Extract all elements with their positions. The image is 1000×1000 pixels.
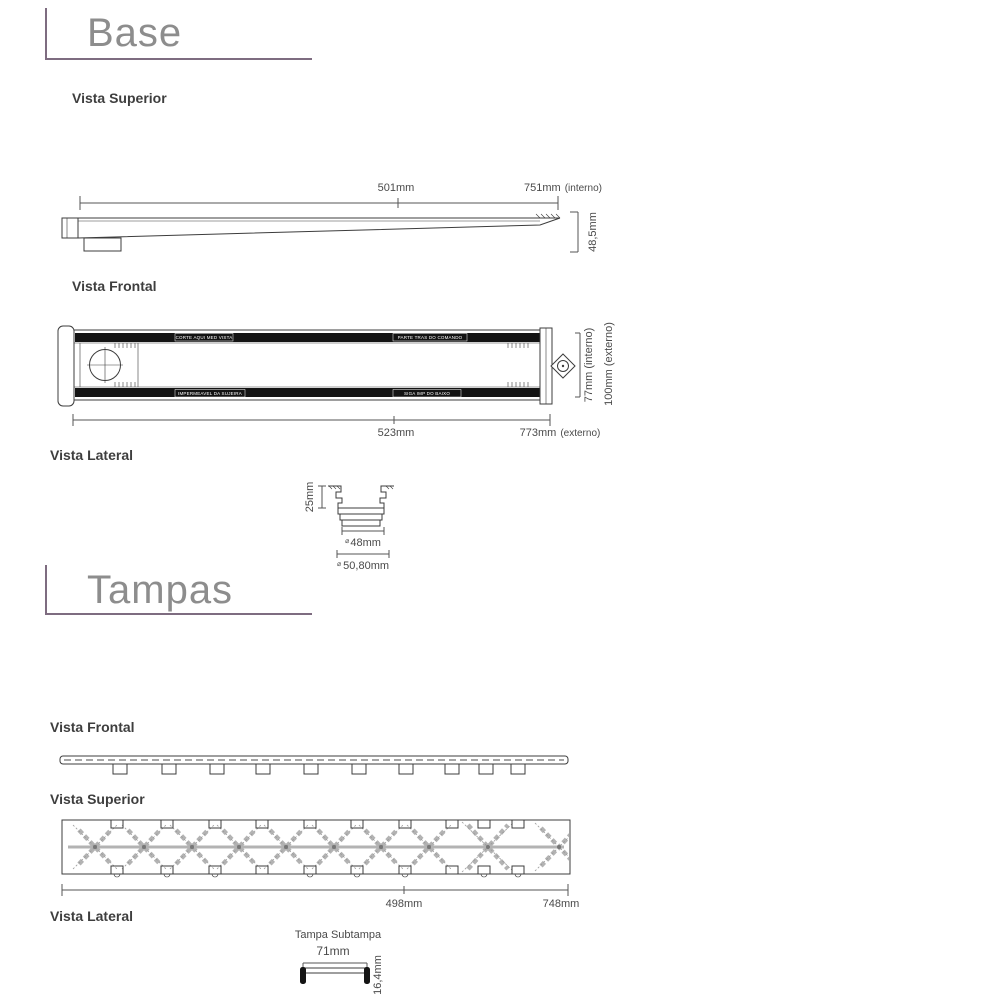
spec-sheet-page: Base Vista Superior 501mm 751mm(interno)… [0,0,1000,1000]
dimension-line-751: 501mm 751mm(interno) [80,182,602,210]
dim-498: 498mm [386,898,423,910]
base-vista-frontal-label: Vista Frontal [72,278,157,294]
tampas-vista-frontal-drawing [40,745,600,787]
base-section-title: Base [47,8,312,58]
dim-71: 71mm [316,944,349,958]
tampas-vista-superior-label: Vista Superior [50,791,145,807]
dimension-25: 25mm [304,482,326,513]
dim-16-4: 16,4mm [372,955,384,995]
tampas-vista-lateral-label: Vista Lateral [50,908,133,924]
base-vista-superior-label: Vista Superior [72,90,167,106]
etch-label-bottom-right: SIGA IMP DO BAIXO [404,391,450,396]
tampas-section-title-block: Tampas [45,565,312,615]
dim-523: 523mm [378,427,415,439]
dim-748: 748mm [543,898,580,910]
etch-label-bottom-left: IMPERMEAVEL DA SUJEIRA [178,391,242,396]
dim-751: 751mm(interno) [524,182,602,194]
dimension-50-80: ⌀50,80mm [337,550,389,572]
etch-label-top-right: PARTE TRAS DO COMANDO [398,335,463,340]
dim-100-externo: 100mm (externo) [603,322,615,406]
tampas-vista-superior-drawing: 498mm 748mm [40,808,600,920]
tampas-vista-lateral-drawing: Tampa Subtampa 71mm 16,4mm [260,922,480,1000]
base-frontal-body [58,326,552,406]
vertical-dimensions: 77mm (interno) 100mm (externo) [575,322,615,406]
tampas-section-title: Tampas [47,565,312,615]
dim-77-interno: 77mm (interno) [583,328,595,403]
dim-diam-48: ⌀48mm [345,537,381,549]
drain-outlet-box [84,238,121,251]
base-vista-lateral-label: Vista Lateral [50,447,133,463]
side-outlet-knob [551,354,575,378]
base-section-title-block: Base [45,8,312,60]
tampas-vista-frontal-label: Vista Frontal [50,719,135,735]
dim-48-5: 48,5mm [587,212,599,252]
dimension-bracket-48-5: 48,5mm [570,212,599,252]
tampa-subtampa-caption: Tampa Subtampa [295,929,382,941]
dim-25: 25mm [304,482,316,513]
subcover-profile [300,967,370,984]
cover-clips [113,764,525,774]
dimension-48: ⌀48mm [342,527,384,549]
base-profile-outline [62,214,560,251]
base-vista-superior-drawing: 501mm 751mm(interno) 48,5mm [40,170,660,275]
dim-773: 773mm(externo) [520,427,601,439]
etch-label-top-left: CORTE AQUI MED VISTA [176,335,233,340]
base-vista-lateral-drawing: 25mm ⌀48mm ⌀50,80mm [290,465,440,577]
dimension-line-748: 498mm 748mm [62,884,579,910]
base-vista-frontal-drawing: CORTE AQUI MED VISTA PARTE TRAS DO COMAN… [40,300,670,450]
spigot-profile [328,486,394,526]
dimension-line-773: 523mm 773mm(externo) [73,414,600,439]
dim-diam-50-80: ⌀50,80mm [337,560,389,572]
dim-501: 501mm [378,182,415,194]
